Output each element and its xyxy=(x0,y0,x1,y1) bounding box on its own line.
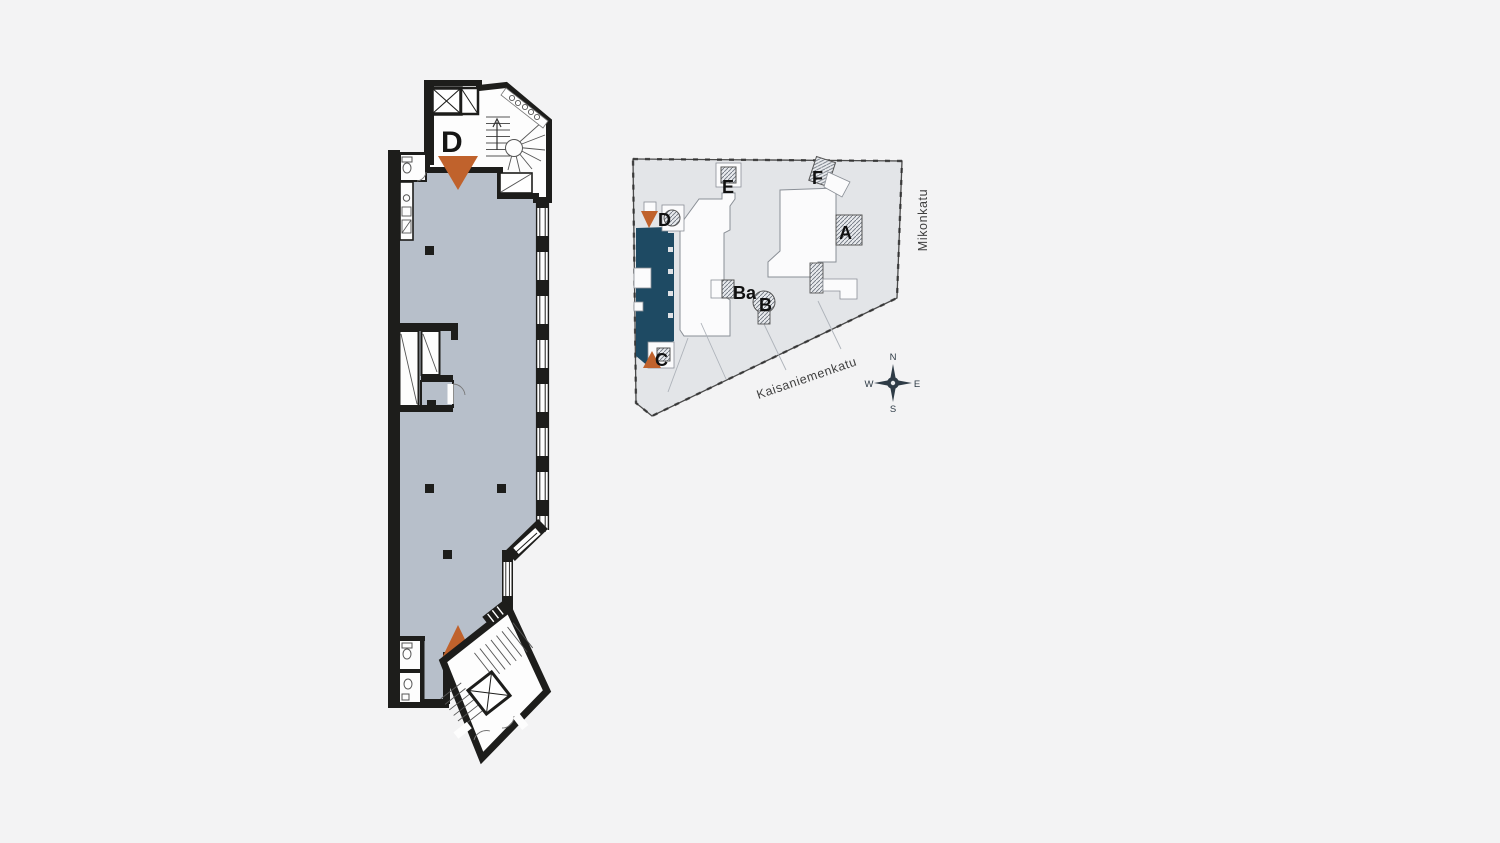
street-mikonkatu: Mikonkatu xyxy=(916,189,930,251)
street-kaisaniemenkatu: Kaisaniemenkatu xyxy=(755,355,859,402)
overview-label-ba: Ba xyxy=(733,283,757,303)
main-floor-plan: D xyxy=(388,83,549,758)
overview-label-e: E xyxy=(722,177,734,197)
overview-label-a: A xyxy=(839,223,852,243)
lightwell-notch xyxy=(634,268,651,288)
elevator-shaft xyxy=(432,88,478,114)
compass-s: S xyxy=(890,404,896,415)
floorplan-page: D xyxy=(0,0,1500,843)
overview-label-f: F xyxy=(812,168,823,188)
entry-bump-d xyxy=(644,202,656,212)
lightwell-notch-small xyxy=(634,302,643,311)
ramp-room xyxy=(500,173,532,193)
compass-rose-icon: N E S W xyxy=(865,352,921,415)
wc-bottom-left xyxy=(398,636,425,704)
entrance-d-label: D xyxy=(441,126,463,159)
overview-label-d: D xyxy=(658,210,671,230)
overview-label-c: C xyxy=(655,350,668,370)
overview-site-plan: D E F A Ba B C Mikonkatu Kaisaniemenkatu… xyxy=(633,157,930,416)
compass-w: W xyxy=(865,379,874,390)
floorplan-drawing: D xyxy=(0,0,1500,843)
compass-e: E xyxy=(914,379,920,390)
core-unlabeled xyxy=(810,263,823,293)
compass-n: N xyxy=(890,352,897,363)
overview-label-b: B xyxy=(759,295,772,315)
